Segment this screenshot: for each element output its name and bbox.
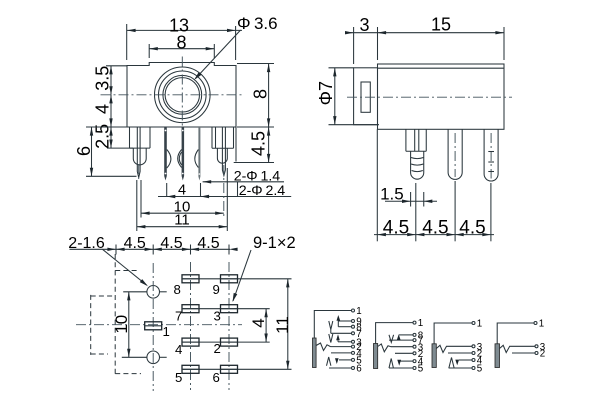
svg-text:4.5: 4.5 xyxy=(422,217,448,238)
svg-text:3: 3 xyxy=(214,309,221,324)
svg-text:6: 6 xyxy=(74,146,94,156)
svg-text:15: 15 xyxy=(431,15,451,35)
svg-text:2.5: 2.5 xyxy=(93,124,113,149)
svg-text:3.5: 3.5 xyxy=(93,66,113,91)
svg-text:5: 5 xyxy=(418,364,424,375)
svg-text:4: 4 xyxy=(249,318,268,327)
svg-text:10: 10 xyxy=(112,315,131,334)
svg-text:8: 8 xyxy=(176,33,186,53)
svg-text:1: 1 xyxy=(477,319,482,330)
svg-text:4: 4 xyxy=(178,182,186,198)
svg-text:6: 6 xyxy=(213,370,220,385)
svg-text:9-1×2: 9-1×2 xyxy=(253,234,296,252)
svg-text:3: 3 xyxy=(359,15,369,35)
svg-text:8: 8 xyxy=(250,89,270,99)
svg-text:1: 1 xyxy=(539,319,544,330)
svg-text:4.5: 4.5 xyxy=(459,217,485,238)
svg-text:2: 2 xyxy=(214,341,221,356)
svg-text:4: 4 xyxy=(175,342,182,357)
svg-text:1.5: 1.5 xyxy=(380,184,404,203)
svg-text:9: 9 xyxy=(213,282,220,297)
svg-text:2-1.6: 2-1.6 xyxy=(68,235,105,252)
svg-text:5: 5 xyxy=(477,364,483,375)
svg-text:4.5: 4.5 xyxy=(160,235,182,252)
svg-text:5: 5 xyxy=(175,370,182,385)
svg-text:4.5: 4.5 xyxy=(197,235,219,252)
svg-text:4: 4 xyxy=(93,104,113,114)
svg-text:1: 1 xyxy=(418,318,423,329)
svg-text:Φ7: Φ7 xyxy=(316,81,336,105)
svg-text:1: 1 xyxy=(163,324,170,339)
svg-text:4.5: 4.5 xyxy=(124,235,146,252)
svg-text:4.5: 4.5 xyxy=(248,131,268,156)
svg-text:2: 2 xyxy=(540,349,545,360)
svg-text:1: 1 xyxy=(356,306,361,317)
svg-text:7: 7 xyxy=(175,309,182,324)
svg-text:8: 8 xyxy=(174,282,181,297)
svg-text:11: 11 xyxy=(174,212,190,229)
svg-text:4.5: 4.5 xyxy=(383,217,409,238)
svg-text:Φ 3.6: Φ 3.6 xyxy=(237,14,278,33)
svg-text:11: 11 xyxy=(273,316,292,334)
svg-text:6: 6 xyxy=(356,364,362,375)
